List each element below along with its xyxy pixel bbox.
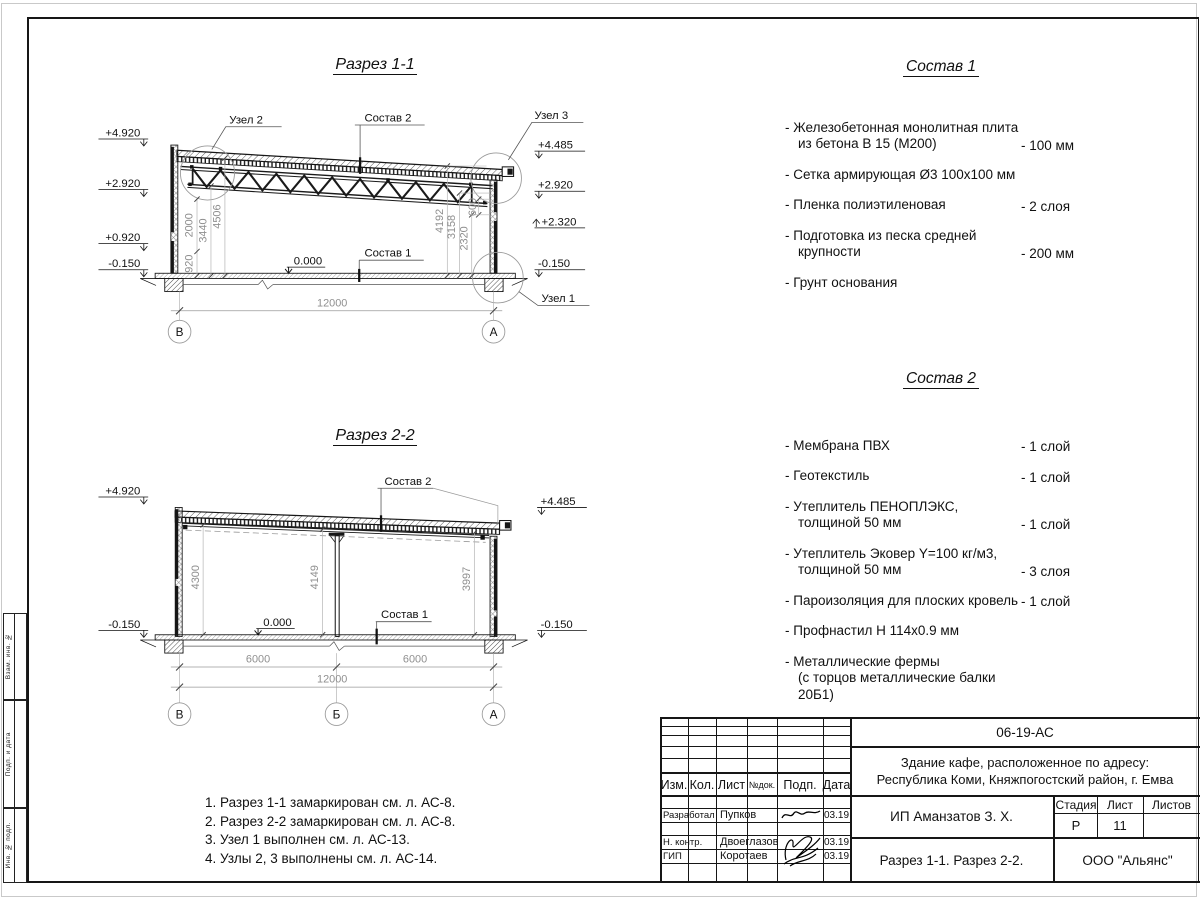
axis-label: В xyxy=(176,708,184,721)
wall-right xyxy=(490,180,497,273)
client-name: ИП Аманзатов З. Х. xyxy=(850,797,1053,835)
dim-label: 3997 xyxy=(461,567,473,591)
level-label: -0.150 xyxy=(538,258,570,270)
zero-label: 0.000 xyxy=(263,617,291,629)
col-header: Изм. xyxy=(660,774,688,795)
dim-label: 6000 xyxy=(403,654,427,666)
level-label: +4.485 xyxy=(541,496,576,508)
role-cell: Н. контр. xyxy=(663,836,716,849)
note-line: 3. Узел 1 выполнен см. л. АС-13. xyxy=(205,831,455,850)
dim-label: 4300 xyxy=(190,565,202,589)
section-2-2-drawing: Состав 2 Состав 1 0.000 +4.920 -0.150 +4… xyxy=(88,420,688,785)
level-label: +4.485 xyxy=(538,140,573,152)
role-cell: ГИП xyxy=(663,850,716,863)
zero-label: 0.000 xyxy=(294,256,322,268)
name-cell: Коротаев xyxy=(720,849,776,863)
sheet-header: Лист xyxy=(1097,796,1143,813)
stage-value: Р xyxy=(1055,814,1097,836)
col-header: Кол. xyxy=(688,774,716,795)
list-item: - Железобетонная монолитная плита из бет… xyxy=(785,120,1097,153)
side-stamp-label: Взам. инв. № xyxy=(5,633,12,679)
level-label: -0.150 xyxy=(541,619,573,631)
sostav2-list: Состав 2 - Мембрана ПВХ- 1 слой - Геотек… xyxy=(785,370,1097,717)
dims-right: 4192 3158 2320 600 xyxy=(434,163,490,278)
sheet-number: 11 xyxy=(1097,814,1143,836)
wall-left xyxy=(171,145,178,273)
axis-label: А xyxy=(490,708,498,721)
name-cell: Пупков xyxy=(720,808,776,822)
level-label: -0.150 xyxy=(108,258,140,270)
sostav1-list-title: Состав 1 xyxy=(785,58,1097,76)
sostav2-label: Состав 2 xyxy=(385,476,432,488)
list-item: - Профнастил Н 114х0.9 мм xyxy=(785,623,1097,639)
date-cell: 03.19 xyxy=(823,835,850,849)
levels-left xyxy=(98,139,148,277)
wall-left xyxy=(175,507,182,636)
list-item: - Металлические фермы (с торцов металлич… xyxy=(785,654,1097,703)
bottom-dims: 6000 6000 12000 xyxy=(171,653,502,703)
date-cell: 03.19 xyxy=(823,849,850,863)
floor-slab xyxy=(140,273,527,291)
list-item: - Пароизоляция для плоских кровель- 1 сл… xyxy=(785,593,1097,609)
col-header: Подп. xyxy=(777,774,823,795)
roof xyxy=(175,511,511,535)
col-header: Лист xyxy=(716,774,747,795)
note-line: 2. Разрез 2-2 замаркирован см. л. АС-8. xyxy=(205,813,455,832)
list-item: - Сетка армирующая Ø3 100х100 мм xyxy=(785,167,1097,183)
side-stamp-vzam: Взам. инв. № xyxy=(3,613,27,700)
level-label: -0.150 xyxy=(108,619,140,631)
dim-label: 600 xyxy=(467,198,479,216)
dim-label: 3440 xyxy=(198,218,210,242)
axis-label: В xyxy=(176,326,184,339)
sheet-title: Разрез 1-1. Разрез 2-2. xyxy=(850,839,1053,881)
sostav1-label: Состав 1 xyxy=(381,609,428,621)
level-label: +2.320 xyxy=(541,216,576,228)
side-stamp-inv: Инв. № подл. xyxy=(3,808,27,883)
zero-mark xyxy=(255,629,295,635)
role-cell: Разработал xyxy=(663,809,716,822)
list-item: - Мембрана ПВХ- 1 слой xyxy=(785,438,1097,454)
title-block: Изм. Кол. Лист №док. Подп. Дата Разработ… xyxy=(660,717,1200,883)
axis-bubbles: В А xyxy=(168,320,505,343)
signature-icon xyxy=(778,830,823,868)
floor-slab xyxy=(140,635,527,653)
node-label: Узел 1 xyxy=(541,293,575,305)
signature-icon xyxy=(778,807,823,822)
side-stamp-label: Подп. и дата xyxy=(5,732,12,776)
zero-mark xyxy=(285,267,325,273)
side-stamp-podp: Подп. и дата xyxy=(3,700,27,808)
dim-label: 6000 xyxy=(246,654,270,666)
level-label: +2.920 xyxy=(105,178,140,190)
list-item: - Геотекстиль- 1 слой xyxy=(785,468,1097,484)
list-item: - Утеплитель ПЕНОПЛЭКС, толщиной 50 мм- … xyxy=(785,499,1097,532)
sostav2-list-title: Состав 2 xyxy=(785,370,1097,388)
sostav1-leader xyxy=(376,622,432,645)
dim-label: 4506 xyxy=(212,204,224,228)
list-item: - Грунт основания xyxy=(785,275,1097,291)
side-stamp-label: Инв. № подл. xyxy=(5,822,12,869)
sheets-header: Листов xyxy=(1143,796,1200,813)
middle-column xyxy=(329,533,345,637)
dim-label: 2000 xyxy=(184,213,196,237)
section-1-1-drawing: Узел 2 Узел 3 Узел 1 Состав 2 Состав 1 0… xyxy=(88,48,688,393)
axis-bubbles: В Б А xyxy=(168,703,505,726)
level-label: +4.920 xyxy=(105,127,140,139)
levels-right xyxy=(537,507,587,637)
dim-label: 12000 xyxy=(317,674,347,686)
axis-label: Б xyxy=(333,708,341,721)
axis-label: А xyxy=(490,326,498,339)
sostav2-label: Состав 2 xyxy=(364,113,411,125)
company-name: ООО "Альянс" xyxy=(1055,839,1200,881)
dim-label: 4192 xyxy=(434,209,446,233)
wall-right xyxy=(490,536,497,636)
dims-left: 920 2000 3440 4506 xyxy=(184,156,228,279)
drawing-sheet: Взам. инв. № Подп. и дата Инв. № подл. Р… xyxy=(0,0,1200,900)
dim-label: 4149 xyxy=(309,565,321,589)
stage-header: Стадия xyxy=(1055,796,1097,813)
note-line: 1. Разрез 1-1 замаркирован см. л. АС-8. xyxy=(205,794,455,813)
levels-left xyxy=(98,497,148,637)
bottom-dim: 12000 xyxy=(171,292,502,321)
dim-label: 920 xyxy=(184,255,196,273)
doc-code: 06-19-АС xyxy=(850,720,1200,744)
project-name-line2: Республика Коми, Княжпогостский район, г… xyxy=(850,770,1200,788)
notes-block: 1. Разрез 1-1 замаркирован см. л. АС-8. … xyxy=(205,794,455,869)
level-label: +2.920 xyxy=(538,180,573,192)
list-item: - Утеплитель Эковер Y=100 кг/м3, толщино… xyxy=(785,546,1097,579)
level-label: +0.920 xyxy=(105,232,140,244)
date-cell: 03.19 xyxy=(823,808,850,822)
level-label: +4.920 xyxy=(105,485,140,497)
dim-label: 3158 xyxy=(446,215,458,239)
sostav1-list: Состав 1 - Железобетонная монолитная пли… xyxy=(785,58,1097,305)
node-label: Узел 3 xyxy=(535,110,569,122)
col-header: №док. xyxy=(747,774,777,795)
project-name-line1: Здание кафе, расположенное по адресу: xyxy=(850,753,1200,771)
sostav1-label: Состав 1 xyxy=(364,248,411,260)
col-header: Дата xyxy=(823,774,850,795)
list-item: - Подготовка из песка средней крупности-… xyxy=(785,228,1097,261)
dim-label: 2320 xyxy=(458,226,470,250)
note-line: 4. Узлы 2, 3 выполнены см. л. АС-14. xyxy=(205,850,455,869)
dim-label: 12000 xyxy=(317,297,347,309)
node-label: Узел 2 xyxy=(229,114,263,126)
name-cell: Двоеглазов xyxy=(720,835,776,849)
list-item: - Пленка полиэтиленовая- 2 слоя xyxy=(785,197,1097,213)
